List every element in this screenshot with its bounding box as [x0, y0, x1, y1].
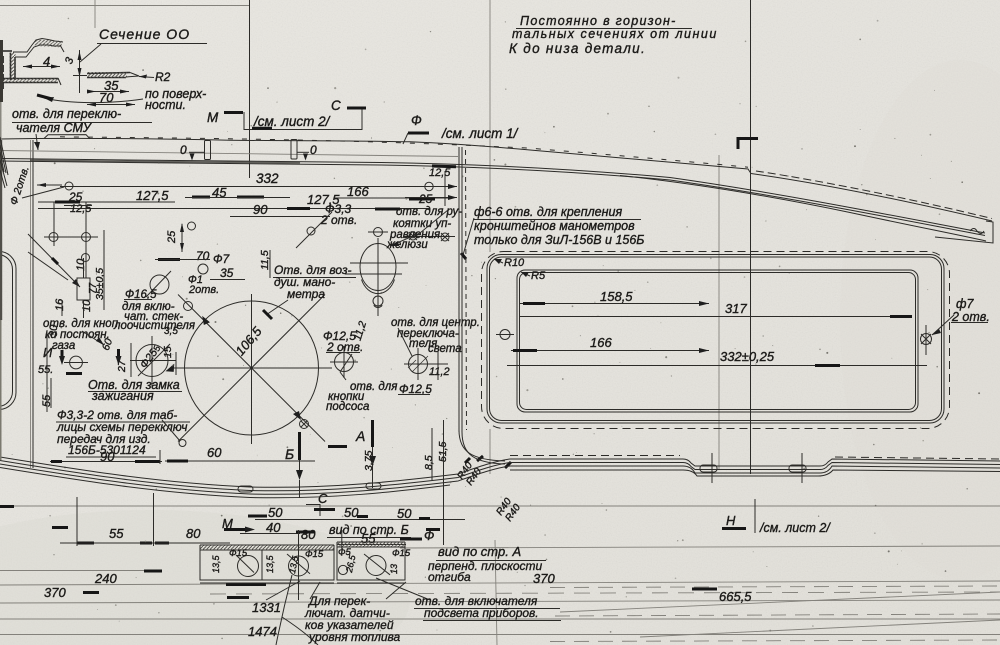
- svg-text:55: 55: [109, 526, 124, 541]
- svg-text:отв. для ру-: отв. для ру-: [396, 206, 462, 218]
- svg-text:127,5: 127,5: [136, 188, 169, 203]
- svg-text:чателя СМУ: чателя СМУ: [16, 121, 93, 135]
- svg-text:10: 10: [81, 299, 93, 312]
- svg-text:10: 10: [75, 258, 87, 271]
- svg-text:80: 80: [186, 526, 201, 541]
- svg-text:ф7: ф7: [956, 297, 974, 311]
- svg-text:8,5: 8,5: [423, 455, 435, 470]
- svg-text:Постоянно в горизон-: Постоянно в горизон-: [520, 14, 677, 28]
- svg-text:35: 35: [220, 266, 234, 280]
- svg-text:13,5: 13,5: [265, 554, 275, 573]
- svg-text:только для ЗиЛ-156В и 156Б: только для ЗиЛ-156В и 156Б: [474, 233, 644, 247]
- svg-text:11,5: 11,5: [259, 250, 271, 270]
- svg-text:50: 50: [397, 506, 412, 521]
- svg-text:1474: 1474: [248, 624, 277, 639]
- svg-text:2 отв.: 2 отв.: [320, 213, 357, 227]
- svg-text:25: 25: [166, 230, 178, 244]
- svg-text:15: 15: [162, 346, 174, 358]
- svg-text:158,5: 158,5: [600, 289, 633, 304]
- svg-text:/см. лист 1/: /см. лист 1/: [441, 126, 519, 141]
- svg-text:317: 317: [725, 301, 747, 316]
- svg-text:2 отв.: 2 отв.: [951, 310, 990, 324]
- svg-text:40: 40: [266, 520, 281, 535]
- svg-text:R5: R5: [531, 270, 546, 282]
- svg-text:166: 166: [347, 184, 369, 199]
- svg-text:12,5: 12,5: [70, 203, 92, 215]
- svg-text:Ф: Ф: [411, 113, 422, 128]
- svg-text:И: И: [43, 345, 53, 360]
- svg-text:Ф15: Ф15: [392, 548, 411, 559]
- svg-text:90: 90: [253, 202, 268, 217]
- svg-text:13,5: 13,5: [211, 554, 221, 573]
- svg-text:метра: метра: [287, 287, 325, 301]
- svg-text:Б: Б: [285, 446, 294, 462]
- svg-text:Сечение ОО: Сечение ОО: [99, 26, 190, 42]
- svg-text:газа: газа: [52, 340, 75, 352]
- svg-text:3,5: 3,5: [164, 326, 178, 337]
- svg-text:55.: 55.: [38, 364, 53, 376]
- svg-text:332±0,25: 332±0,25: [720, 349, 775, 364]
- svg-text:30: 30: [48, 324, 60, 337]
- svg-text:отгиба: отгиба: [428, 570, 471, 584]
- svg-text:R2: R2: [155, 70, 171, 84]
- svg-text:Ф7: Ф7: [213, 252, 231, 266]
- svg-text:зажигания: зажигания: [91, 389, 154, 403]
- svg-text:ф6-6 отв. для крепления: ф6-6 отв. для крепления: [474, 205, 622, 219]
- svg-text:подсвета приборов.: подсвета приборов.: [424, 606, 539, 620]
- svg-text:0: 0: [180, 143, 187, 157]
- svg-text:3,75: 3,75: [363, 450, 375, 471]
- svg-text:2отв.: 2отв.: [188, 284, 219, 296]
- svg-text:C: C: [331, 98, 341, 113]
- svg-text:вид по стр. A: вид по стр. A: [438, 544, 521, 559]
- svg-text:M: M: [207, 110, 219, 125]
- svg-text:Ф15: Ф15: [305, 549, 324, 560]
- svg-text:25: 25: [68, 190, 83, 204]
- svg-text:R10: R10: [504, 257, 525, 269]
- svg-text:370: 370: [533, 571, 555, 586]
- svg-text:665,5: 665,5: [719, 589, 752, 604]
- svg-text:света: света: [428, 343, 462, 355]
- svg-text:166: 166: [590, 335, 612, 350]
- svg-text:50: 50: [344, 505, 359, 520]
- svg-text:2 отв.: 2 отв.: [326, 340, 363, 354]
- svg-text:240: 240: [94, 571, 117, 586]
- svg-text:16: 16: [54, 298, 66, 311]
- svg-text:370: 370: [44, 585, 66, 600]
- svg-text:кронштейнов манометров: кронштейнов манометров: [474, 219, 635, 233]
- svg-text:подсоса: подсоса: [326, 401, 369, 413]
- svg-text:лоочистителя: лоочистителя: [113, 320, 195, 332]
- svg-text:/см. лист 2/: /см. лист 2/: [759, 521, 831, 535]
- svg-text:12,5: 12,5: [429, 167, 451, 179]
- svg-text:70: 70: [196, 249, 210, 263]
- svg-text:ности.: ности.: [145, 98, 186, 112]
- svg-text:тальных сечениях от линии: тальных сечениях от линии: [512, 27, 718, 41]
- svg-text:50: 50: [268, 505, 283, 520]
- svg-text:1331: 1331: [252, 600, 281, 615]
- svg-text:60: 60: [207, 445, 222, 460]
- svg-text:Ф12,5: Ф12,5: [399, 382, 432, 396]
- svg-text:332: 332: [256, 171, 279, 186]
- svg-text:Ф15: Ф15: [229, 548, 248, 559]
- svg-text:13: 13: [389, 564, 399, 574]
- svg-text:отв. для переклю-: отв. для переклю-: [12, 107, 121, 121]
- svg-text:H: H: [726, 513, 736, 528]
- svg-text:11,2: 11,2: [429, 366, 450, 378]
- svg-text:25: 25: [418, 192, 433, 206]
- svg-text:A: A: [355, 428, 365, 444]
- svg-text:80: 80: [301, 527, 316, 542]
- svg-text:К до низа детали.: К до низа детали.: [509, 41, 646, 56]
- svg-text:/см. лист 2/: /см. лист 2/: [253, 114, 331, 129]
- svg-text:0: 0: [310, 143, 317, 157]
- svg-text:уровня топлива: уровня топлива: [308, 630, 401, 644]
